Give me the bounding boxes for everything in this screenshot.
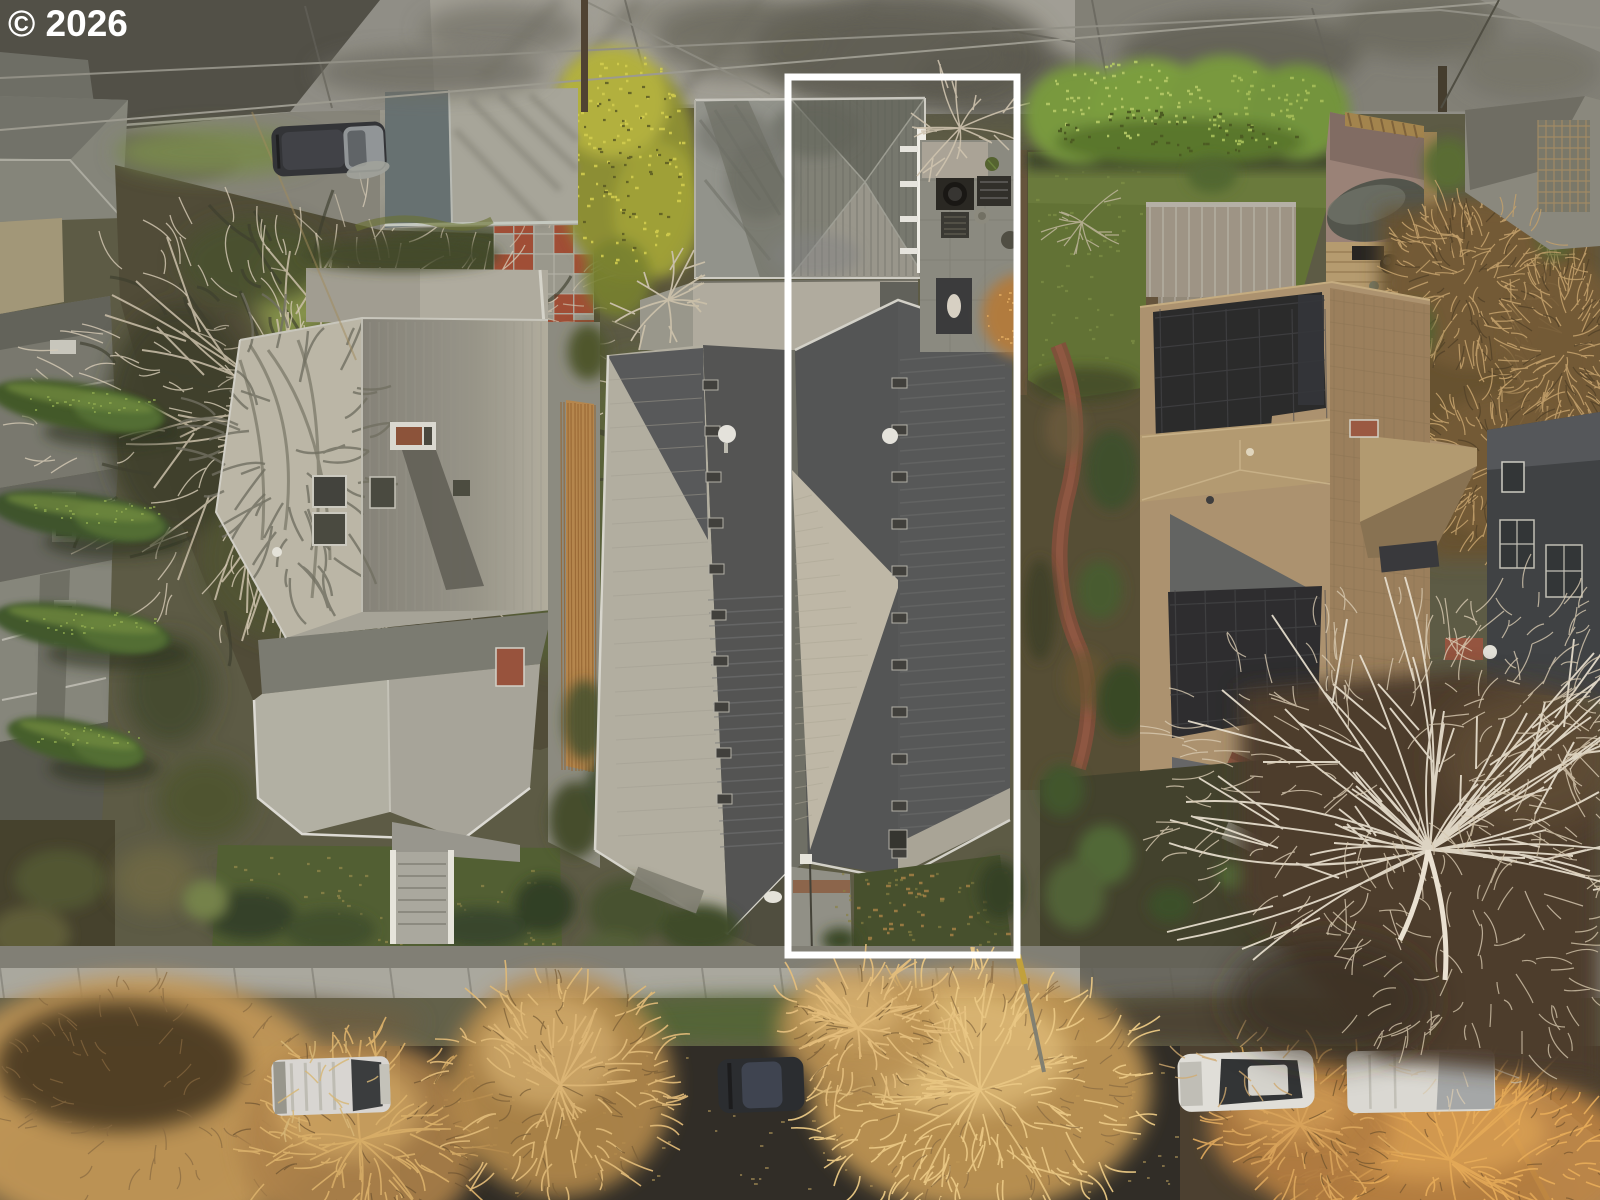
svg-text:© 2026: © 2026: [8, 3, 128, 44]
